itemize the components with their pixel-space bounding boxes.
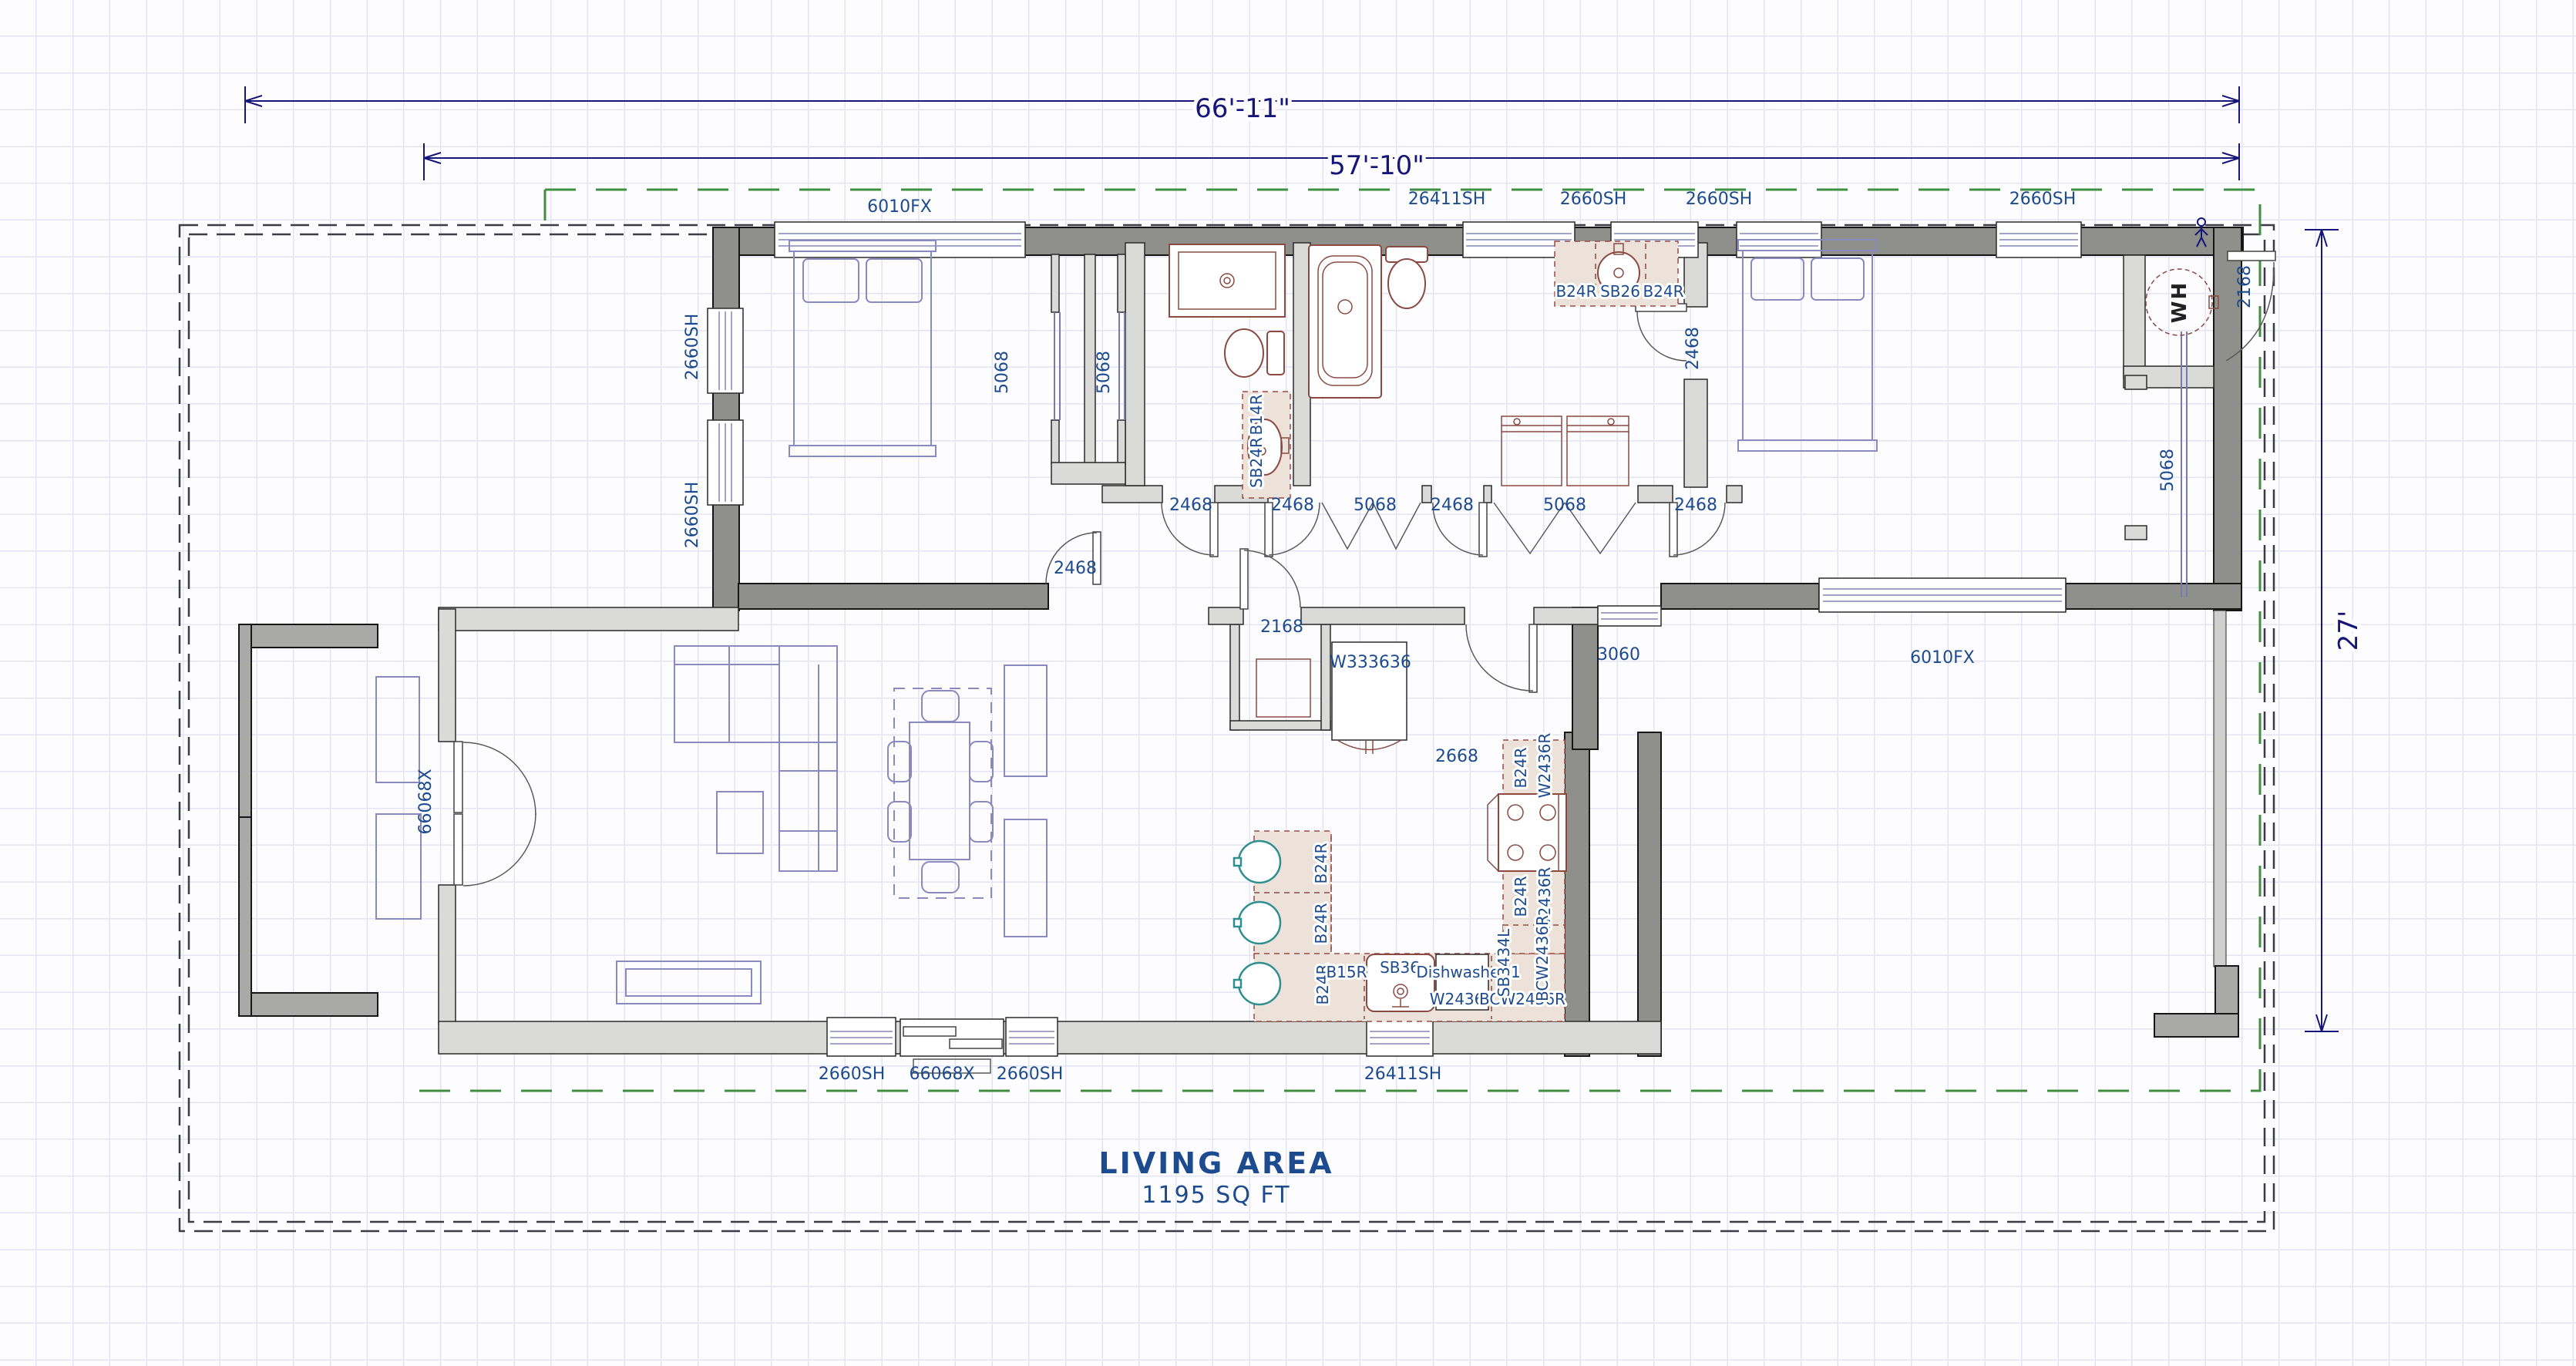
label-bath1-cab-1: B14R — [1247, 394, 1266, 435]
dimension-depth: 27' — [2305, 230, 2364, 1031]
label-window-top-3: 2660SH — [1560, 190, 1627, 209]
window-3060-rear[interactable] — [1598, 606, 1661, 626]
label-bedroom2-closet: 5068 — [2158, 449, 2177, 492]
label-right-2: W2436R — [1535, 733, 1554, 799]
window-2660sh-top-3[interactable] — [1996, 222, 2081, 257]
bar-stools[interactable] — [1234, 841, 1280, 1004]
dimension-main-width-text: 57'-10" — [1329, 150, 1424, 181]
dryer[interactable] — [1567, 416, 1629, 486]
washer[interactable] — [1502, 416, 1562, 486]
floor-plan-canvas: 66'-11" 57'-10" 27' 6010FX 26411SH 2660S… — [0, 0, 2576, 1366]
toilet-bath2[interactable] — [1386, 247, 1428, 308]
label-hall-door-4: 2468 — [1431, 496, 1474, 515]
label-bedroom1-door: 2468 — [1054, 559, 1097, 578]
label-hall-door-6: 2468 — [1674, 496, 1717, 515]
label-bath2-door: 2468 — [1683, 327, 1703, 370]
label-peninsula-2: B24R — [1312, 903, 1330, 944]
pantry-shelf[interactable] — [1256, 659, 1310, 717]
pantry-door[interactable] — [1240, 549, 1300, 609]
deck-outline[interactable] — [180, 225, 2274, 1231]
label-base-bcw2436r: BCW2436R — [1479, 990, 1565, 1008]
sectional-sofa[interactable] — [674, 646, 837, 871]
label-window-bottom-3: 2660SH — [997, 1065, 1064, 1084]
label-window-bottom-4: 26411SH — [1364, 1065, 1442, 1084]
label-window-rear-1: 3060 — [1597, 645, 1640, 664]
label-right-5: SB3434L — [1495, 928, 1513, 997]
range[interactable] — [1488, 794, 1566, 871]
exterior-walls[interactable] — [713, 227, 2243, 1056]
label-bath2-cab-2: SB26 — [1600, 282, 1640, 301]
toilet-bath1[interactable] — [1225, 329, 1284, 377]
label-water-heater: WH — [2168, 281, 2191, 323]
living-area-value: 1195 SQ FT — [1142, 1182, 1290, 1209]
dining-set[interactable] — [888, 688, 993, 898]
label-wh-door: 2168 — [2235, 265, 2255, 308]
label-window-bottom-1: 2660SH — [819, 1065, 886, 1084]
entry-double-door[interactable] — [454, 742, 536, 886]
label-hall-door-2: 2468 — [1271, 496, 1314, 515]
living-area-title: LIVING AREA — [1098, 1146, 1333, 1180]
label-hall-door-5: 5068 — [1543, 496, 1586, 515]
label-right-6: BCW2436R — [1533, 915, 1552, 1001]
bath2-door[interactable] — [1636, 304, 1687, 361]
label-hall-door-1: 2468 — [1169, 496, 1212, 515]
label-window-left-1: 2660SH — [683, 314, 702, 381]
label-tall-cabinet: W333636 — [1330, 653, 1411, 672]
label-bath2-cab-3: B24R — [1643, 282, 1683, 301]
label-window-top-1: 6010FX — [867, 197, 932, 217]
window-2660sh-bottom-2[interactable] — [1006, 1018, 1058, 1056]
dimension-overall-width: 66'-11" — [245, 86, 2239, 124]
label-base-b15r: B15R — [1326, 963, 1367, 981]
label-right-1: B24R — [1512, 747, 1530, 788]
label-base-sb36: SB36 — [1380, 958, 1420, 977]
bed-bedroom2[interactable] — [1738, 240, 1877, 451]
label-hall-door-3: 5068 — [1354, 496, 1397, 515]
label-entry-door: 66068X — [416, 769, 435, 834]
label-window-top-5: 2660SH — [2009, 190, 2077, 209]
window-26411sh-bottom[interactable] — [1367, 1018, 1433, 1056]
label-bath2-cab-1: B24R — [1555, 282, 1596, 301]
dimension-main-width: 57'-10" — [424, 143, 2239, 181]
bed-bedroom1[interactable] — [789, 241, 936, 456]
window-6010fx-rear[interactable] — [1819, 578, 2066, 612]
label-window-bottom-2: 66068X — [909, 1065, 974, 1084]
label-right-3: B24R — [1512, 876, 1530, 917]
label-bedroom1-closet-2: 5068 — [1095, 351, 1114, 394]
label-bedroom1-closet-1: 5068 — [993, 351, 1012, 394]
window-2660sh-left-2[interactable] — [708, 420, 743, 505]
label-bath1-cab-2: SB24R — [1247, 437, 1266, 488]
ottoman[interactable] — [717, 792, 763, 853]
label-window-top-2: 26411SH — [1408, 190, 1486, 209]
shower[interactable] — [1169, 244, 1285, 317]
window-2660sh-left-1[interactable] — [708, 308, 743, 393]
window-2660sh-bottom-1[interactable] — [827, 1018, 896, 1056]
bathtub[interactable] — [1309, 245, 1381, 398]
label-peninsula-1: B24R — [1312, 843, 1330, 883]
label-kitchen-door: 2668 — [1435, 747, 1478, 766]
label-window-left-2: 2660SH — [683, 482, 702, 549]
media-console[interactable] — [617, 961, 761, 1004]
dimension-overall-width-text: 66'-11" — [1195, 93, 1290, 124]
porch-benches[interactable] — [376, 677, 421, 919]
kitchen-door[interactable] — [1466, 624, 1537, 692]
console-tables[interactable] — [1004, 665, 1047, 937]
label-window-rear-2: 6010FX — [1910, 648, 1975, 668]
label-pantry-door: 2168 — [1260, 617, 1303, 637]
dimension-depth-text: 27' — [2333, 611, 2364, 651]
label-window-top-4: 2660SH — [1686, 190, 1753, 209]
